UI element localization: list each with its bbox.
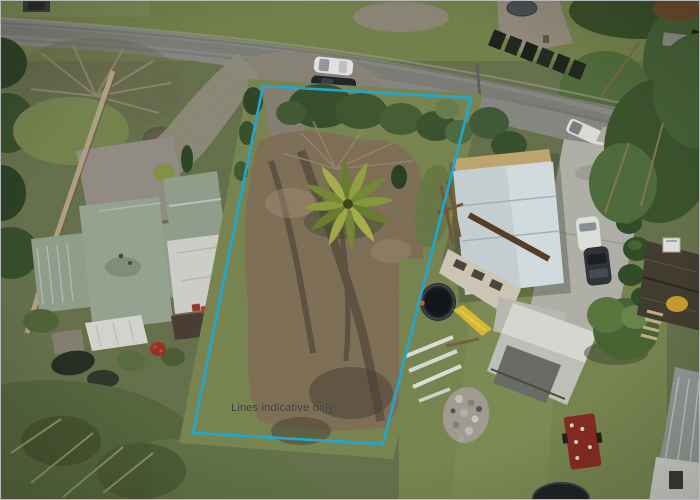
boundary-disclaimer-text: Lines indicative only — [231, 402, 334, 414]
aerial-scene — [1, 1, 700, 500]
photo-vignette — [1, 1, 700, 500]
aerial-photo: Lines indicative only — [0, 0, 700, 500]
